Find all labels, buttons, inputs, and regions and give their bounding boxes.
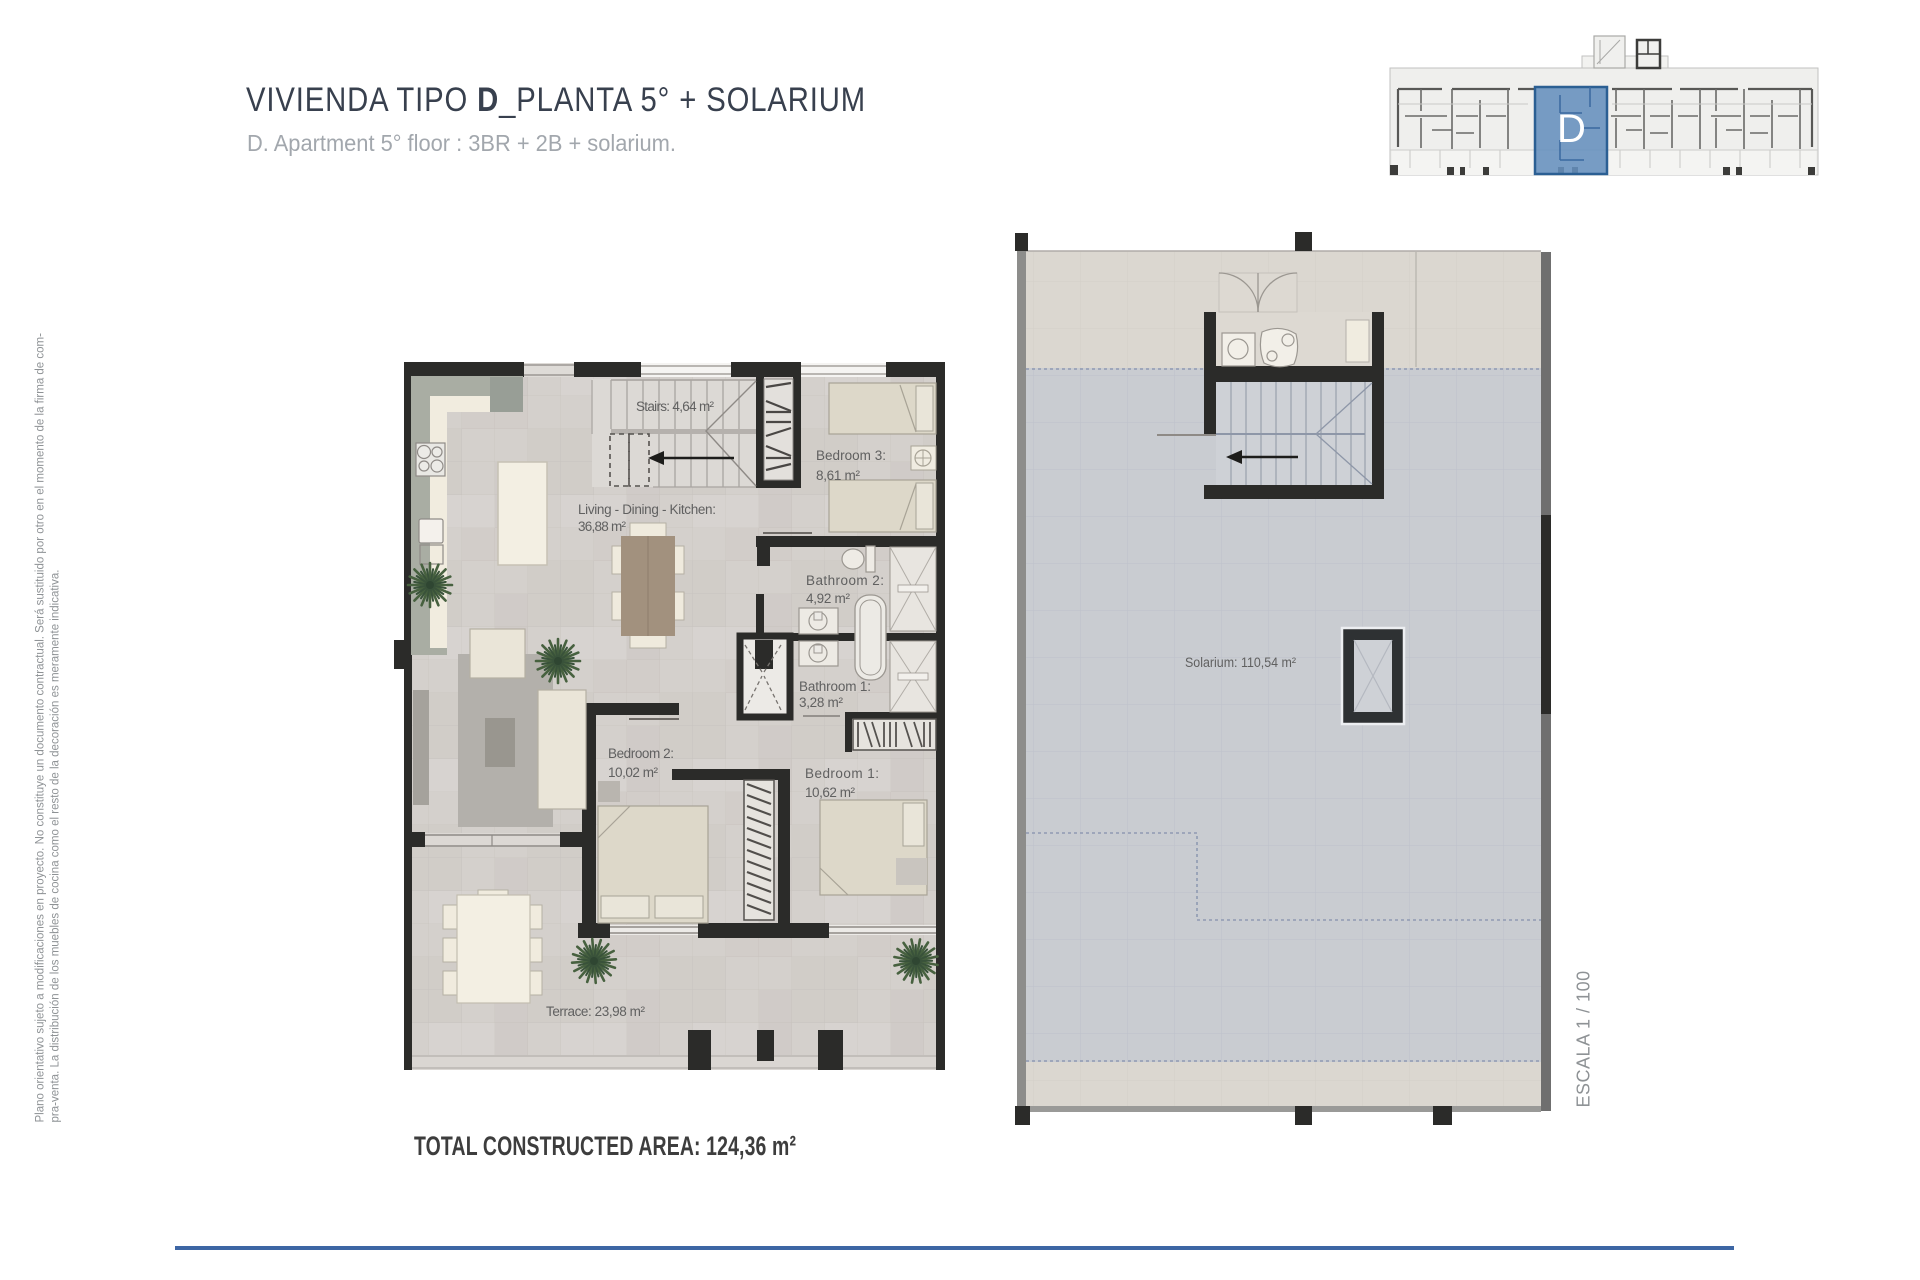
svg-text:10,62 m²: 10,62 m²: [805, 785, 856, 800]
svg-text:Bathroom 1:: Bathroom 1:: [799, 679, 871, 694]
svg-text:Solarium: 110,54 m²: Solarium: 110,54 m²: [1185, 655, 1296, 670]
svg-text:8,61 m²: 8,61 m²: [816, 468, 861, 483]
svg-text:Bathroom 2:: Bathroom 2:: [806, 573, 884, 588]
svg-text:10,02 m²: 10,02 m²: [608, 765, 659, 780]
svg-text:3,28 m²: 3,28 m²: [799, 695, 844, 710]
svg-text:Terrace: 23,98 m²: Terrace: 23,98 m²: [546, 1004, 646, 1019]
svg-text:Bedroom 2:: Bedroom 2:: [608, 746, 674, 761]
svg-text:Living - Dining - Kitchen:: Living - Dining - Kitchen:: [578, 502, 716, 517]
svg-text:Stairs: 4,64 m²: Stairs: 4,64 m²: [636, 399, 715, 414]
svg-text:D: D: [1557, 107, 1586, 151]
svg-text:4,92 m²: 4,92 m²: [806, 591, 851, 606]
svg-text:Bedroom 1:: Bedroom 1:: [805, 766, 879, 781]
svg-text:36,88 m²: 36,88 m²: [578, 519, 627, 534]
svg-text:Bedroom 3:: Bedroom 3:: [816, 448, 886, 463]
